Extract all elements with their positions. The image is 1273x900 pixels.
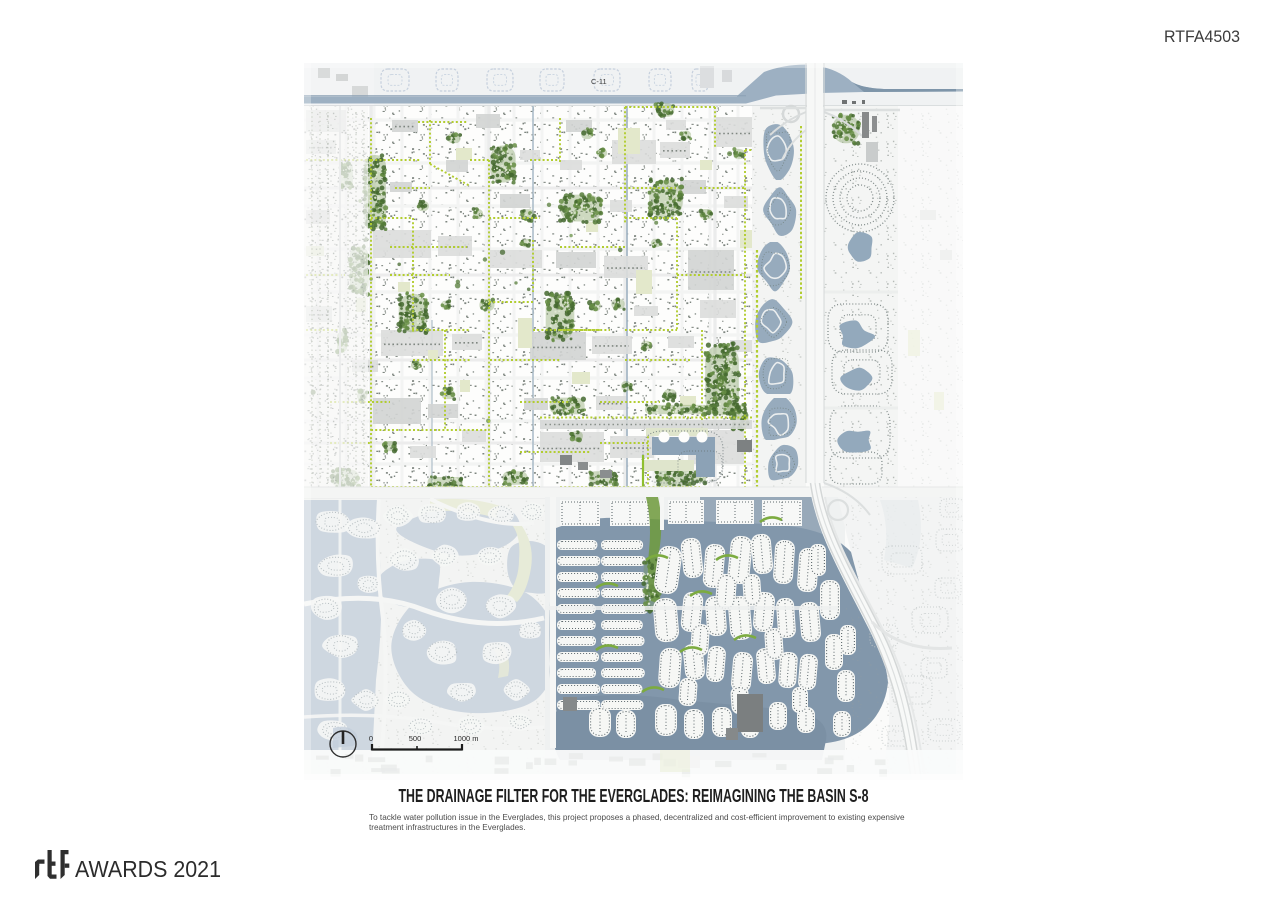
- svg-text:C-11: C-11: [591, 77, 607, 86]
- svg-text:AWARDS 2021: AWARDS 2021: [75, 856, 221, 882]
- svg-text:500: 500: [409, 734, 422, 743]
- svg-text:RTFA4503: RTFA4503: [1164, 28, 1240, 46]
- svg-text:THE DRAINAGE FILTER FOR THE EV: THE DRAINAGE FILTER FOR THE EVERGLADES: …: [399, 786, 869, 806]
- svg-text:0: 0: [369, 734, 373, 743]
- svg-text:1000 m: 1000 m: [453, 734, 478, 743]
